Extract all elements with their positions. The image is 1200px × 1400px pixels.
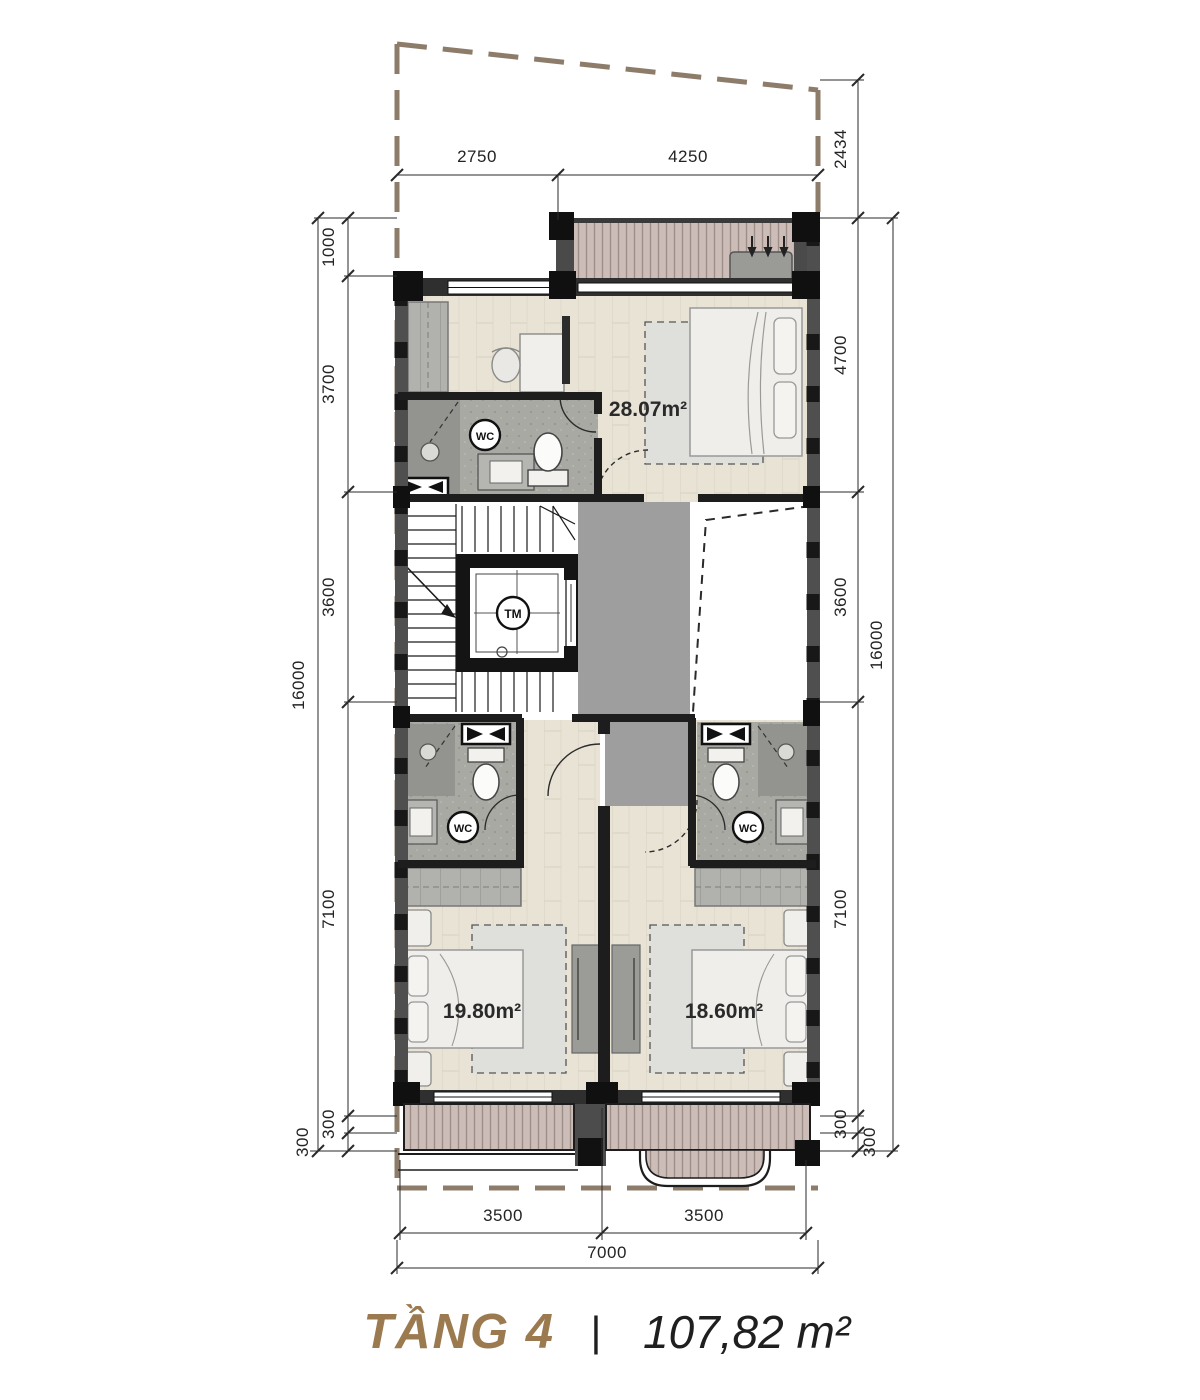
dim-left-1: 3700: [319, 364, 338, 404]
plan-title: TẦNG 4 | 107,82 m²: [363, 1305, 851, 1359]
wc-label-right: WC: [739, 823, 757, 835]
dim-left-5: 300: [293, 1127, 312, 1157]
master-area-label: 28.07m²: [609, 398, 687, 421]
washer-left: [462, 724, 510, 744]
dim-bottom-1: 3500: [684, 1206, 724, 1225]
dim-left-0: 1000: [319, 227, 338, 267]
dim-left-3: 7100: [319, 889, 338, 929]
elevator: TM: [456, 554, 578, 672]
dim-right-1: 4700: [831, 335, 850, 375]
floor-area: 107,82 m²: [643, 1306, 852, 1358]
floor-title: TẦNG 4: [363, 1305, 555, 1359]
stair-treads-top: [462, 506, 575, 552]
floorplan-canvas: 28.07m² WC: [0, 0, 1200, 1400]
dim-top-0: 2750: [457, 147, 497, 166]
dim-left-2: 3600: [319, 577, 338, 617]
tv-console-right: [612, 945, 640, 1053]
tv-console-left: [572, 945, 600, 1053]
mid-landing: [605, 720, 690, 806]
floorplan-page: 28.07m² WC: [0, 0, 1200, 1400]
balcony-right-bottom: [606, 1104, 820, 1186]
balcony-divider-pier: [578, 1138, 603, 1166]
dim-bottom-0: 3500: [483, 1206, 523, 1225]
dim-left-4: 300: [319, 1109, 338, 1139]
dim-top: [391, 169, 824, 220]
void-area: [693, 506, 810, 712]
dim-top-1: 4250: [668, 147, 708, 166]
elevator-label: TM: [504, 607, 521, 621]
bedroom-right-area-label: 18.60m²: [685, 1000, 763, 1023]
stair-break-line: [400, 560, 456, 618]
dim-right-5: 300: [860, 1127, 879, 1157]
dim-bottom-2: 7000: [587, 1243, 627, 1262]
dim-left-6: 16000: [289, 660, 308, 710]
dim-right-0: 2434: [831, 129, 850, 169]
dim-right-4: 300: [831, 1109, 850, 1139]
bedroom-left-area-label: 19.80m²: [443, 1000, 521, 1023]
stair-treads-bottom: [462, 672, 553, 712]
wc-label-left: WC: [454, 823, 472, 835]
dim-right-3: 7100: [831, 889, 850, 929]
shower-head: [421, 443, 439, 461]
bed-master: [690, 308, 802, 456]
dim-left: [310, 212, 397, 1157]
stair-landing: [578, 502, 690, 714]
washer-right: [702, 724, 750, 744]
dim-right-6: 16000: [867, 620, 886, 670]
balcony-left-bottom: [398, 1104, 578, 1170]
title-separator: |: [591, 1308, 602, 1355]
wc-label-master: WC: [476, 431, 494, 443]
dim-right-2: 3600: [831, 577, 850, 617]
